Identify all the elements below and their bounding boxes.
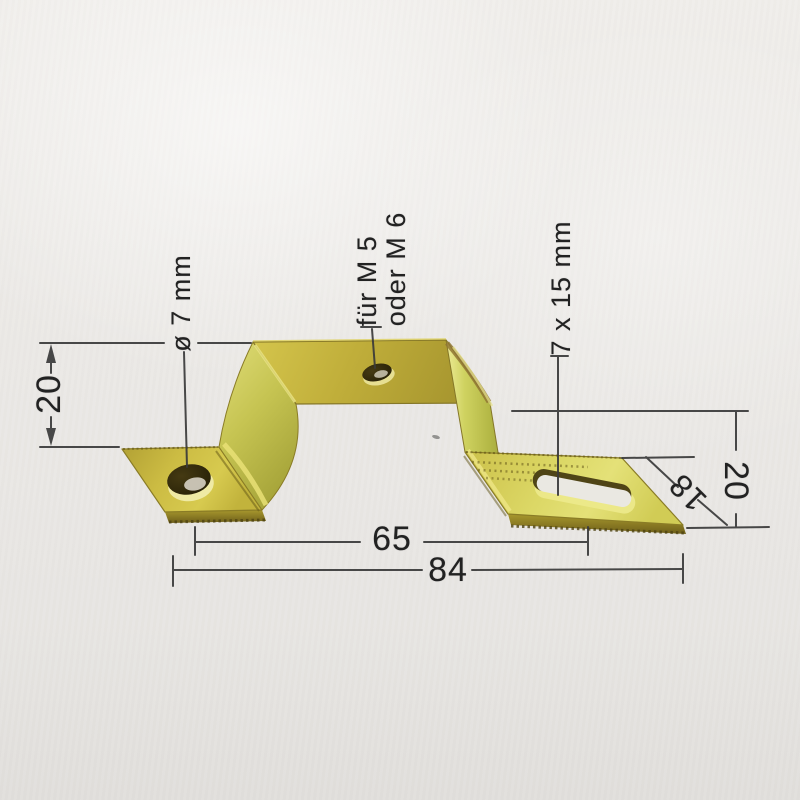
catalog-scan-page: ø 7 mm für M 5 oder M 6 7 x 15 mm 20 20 … [0, 0, 800, 800]
dim-value-overall-span: 84 [428, 553, 468, 589]
arrow-down-icon [46, 428, 56, 446]
label-thread-size: für M 5 oder M 6 [353, 212, 411, 327]
scan-speck [432, 434, 441, 440]
label-thread-line2: oder M 6 [382, 212, 411, 327]
dim-line-84-b [472, 569, 683, 570]
bracket-drawing [0, 0, 800, 800]
label-slot-size: 7 x 15 mm [547, 220, 575, 355]
dim-value-height-right: 20 [717, 461, 753, 501]
dim-value-height-left: 20 [32, 374, 68, 414]
label-thread-line1: für M 5 [353, 212, 382, 327]
dim-value-inner-span: 65 [372, 522, 412, 558]
bracket-photo [122, 339, 686, 534]
ext-line-right-bottom [687, 527, 769, 528]
ext-line-corner [622, 457, 694, 458]
arrow-up-icon [46, 344, 56, 363]
label-hole-diameter: ø 7 mm [167, 254, 195, 352]
